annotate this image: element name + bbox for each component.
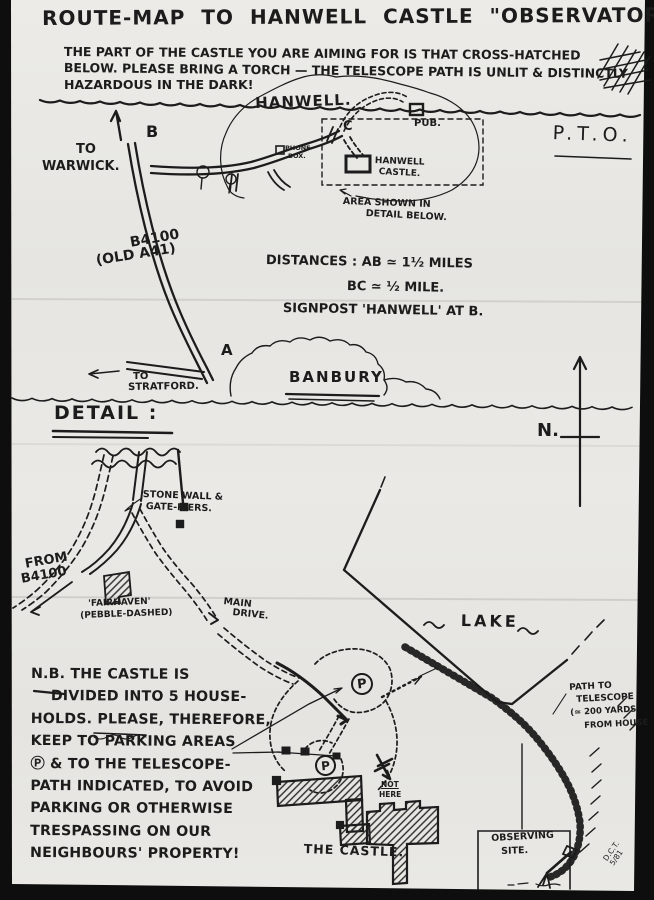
to-stratford-line2: STRATFORD. — [128, 382, 199, 394]
lake-label: LAKE — [461, 613, 519, 631]
nb-note-line: N.B. THE CASTLE IS — [31, 667, 271, 691]
not-here-line2: HERE — [379, 791, 401, 799]
nb-note-line: KEEP TO PARKING AREAS — [31, 734, 271, 758]
nb-note-block: N.B. THE CASTLE IS DIVIDED INTO 5 HOUSE-… — [30, 667, 271, 870]
detail-heading: DETAIL : — [54, 404, 158, 424]
intro-note-line1: THE PART OF THE CASTLE YOU ARE AIMING FO… — [64, 45, 581, 62]
nb-note-line: HOLDS. PLEASE, THEREFORE, — [31, 712, 271, 736]
scanned-route-map-page: ROUTE-MAP TO HANWELL CASTLE "OBSERVATORY… — [0, 0, 654, 900]
not-here-line1: NOT — [381, 781, 399, 789]
nb-note-line: PATH INDICATED, TO AVOID — [30, 779, 270, 803]
phone-box-line2: BOX. — [288, 153, 306, 160]
point-a-label: A — [221, 343, 233, 359]
to-warwick-line1: TO — [76, 143, 96, 157]
pto-label: P.T.O. — [552, 124, 633, 147]
phone-box-line1: PHONE- — [285, 145, 313, 152]
nb-note-line: PARKING OR OTHERWISE — [30, 801, 270, 825]
to-warwick-line2: WARWICK. — [42, 160, 120, 174]
north-label: N. — [537, 422, 559, 441]
point-c-label: C — [343, 120, 353, 134]
nb-note-line: DIVIDED INTO 5 HOUSE- — [31, 689, 271, 713]
nb-note-line: Ⓟ & TO THE TELESCOPE- — [30, 757, 270, 781]
village-name: HANWELL. — [255, 93, 352, 112]
distances-line2: BC ≃ ½ MILE. — [347, 280, 444, 295]
pub-label: PUB. — [414, 119, 441, 130]
intro-note-line3: HAZARDOUS IN THE DARK! — [64, 78, 253, 91]
page-title: ROUTE-MAP TO HANWELL CASTLE "OBSERVATORY… — [42, 4, 654, 29]
point-b-label: B — [146, 124, 158, 141]
the-castle-label: THE CASTLE. — [304, 842, 405, 859]
nb-note-line: TRESPASSING ON OUR — [30, 824, 270, 848]
town-name: BANBURY — [289, 370, 384, 386]
observing-site-line2: SITE. — [501, 846, 528, 857]
nb-note-line: NEIGHBOURS' PROPERTY! — [30, 846, 270, 870]
